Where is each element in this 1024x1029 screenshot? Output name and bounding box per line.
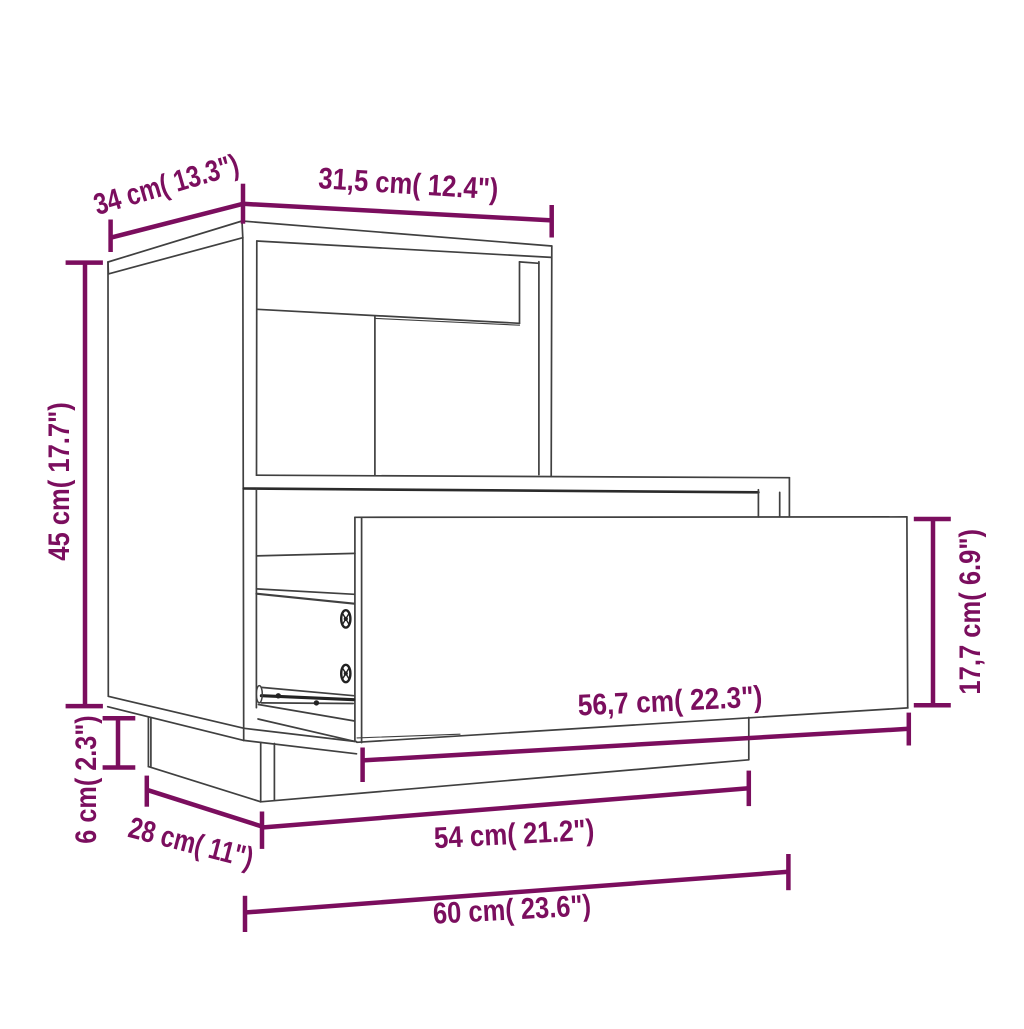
svg-text:45 cm( 17.7"): 45 cm( 17.7") bbox=[43, 402, 76, 560]
svg-text:6 cm( 2.3"): 6 cm( 2.3") bbox=[70, 715, 103, 843]
svg-text:17,7 cm( 6.9"): 17,7 cm( 6.9") bbox=[954, 529, 987, 695]
